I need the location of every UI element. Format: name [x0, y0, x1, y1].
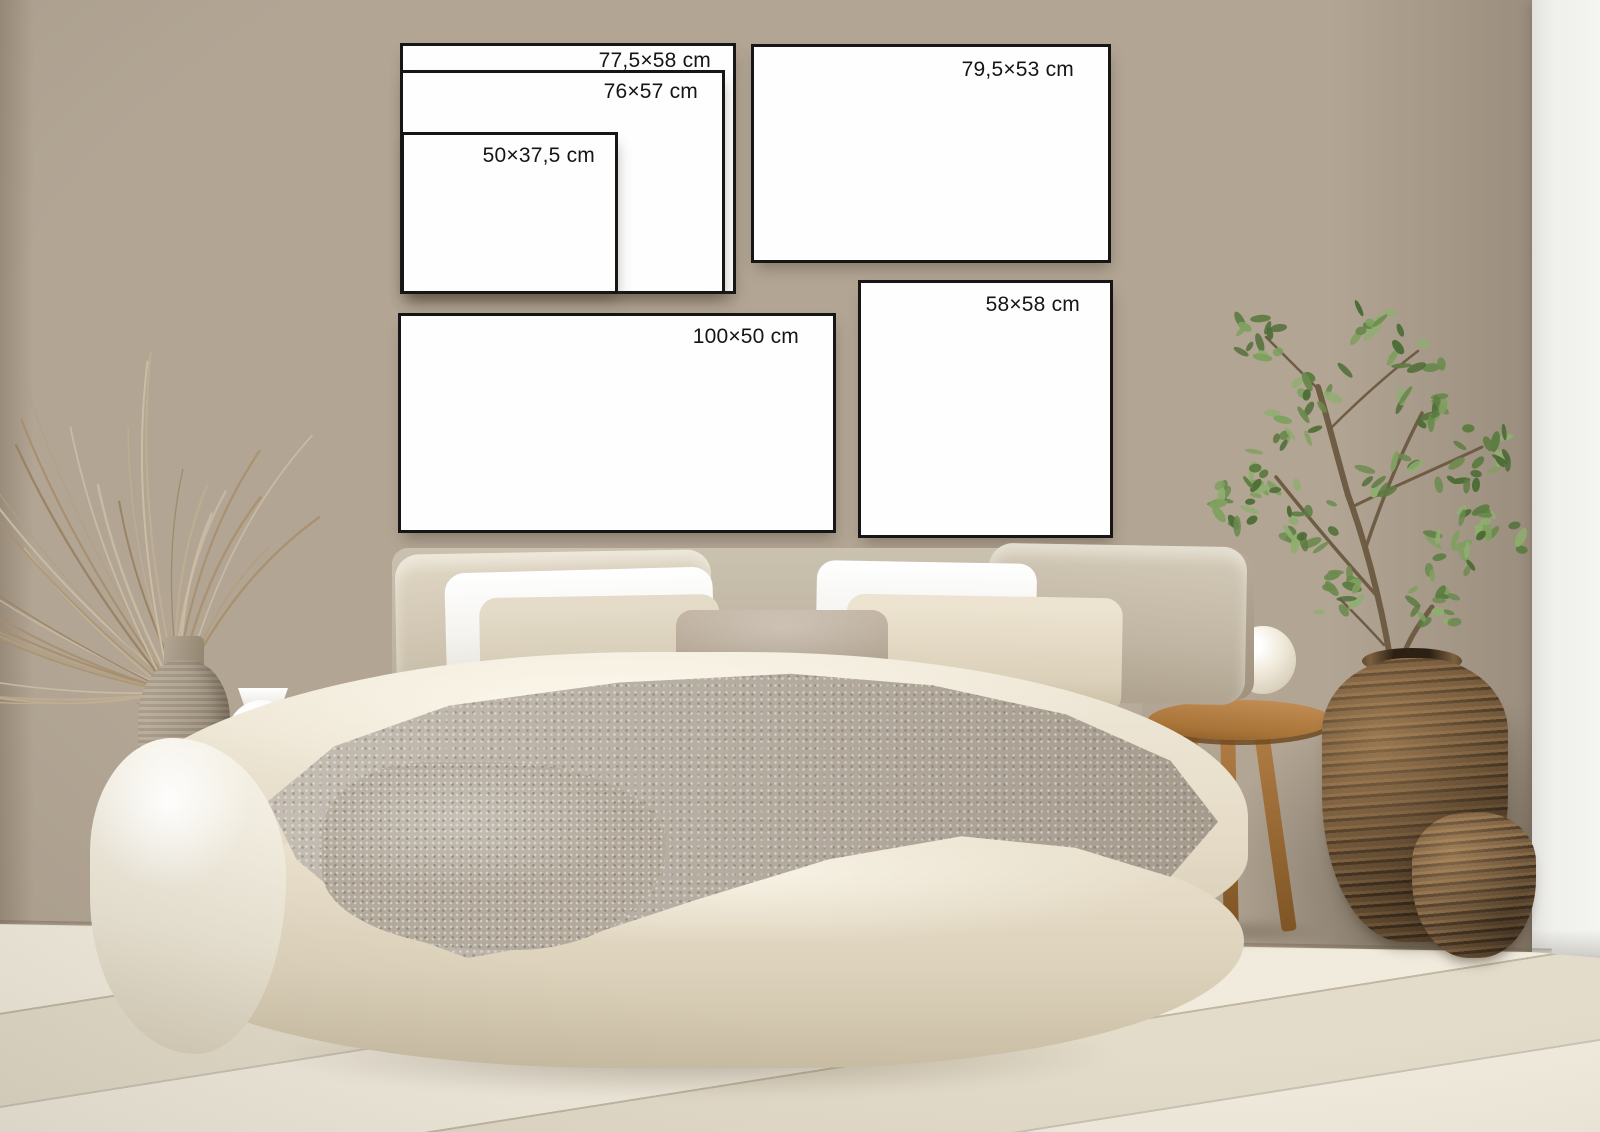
- knit-throw-drape: [322, 762, 666, 950]
- frame-size-label: 77,5×58 cm: [599, 49, 711, 72]
- duvet-left-drape: [90, 738, 286, 1054]
- frame-size-label: 76×57 cm: [604, 80, 698, 103]
- frame-size-label: 100×50 cm: [693, 325, 799, 348]
- woven-floor-pot-small: [1412, 812, 1536, 958]
- frame-size-label: 79,5×53 cm: [962, 58, 1074, 81]
- bedroom-mockup-scene: 77,5×58 cm 76×57 cm 50×37,5 cm 79,5×53 c…: [0, 0, 1600, 1132]
- frame-100x50: 100×50 cm: [398, 313, 836, 533]
- frame-size-label: 58×58 cm: [986, 293, 1080, 316]
- frame-50x37-5: 50×37,5 cm: [401, 132, 618, 294]
- frame-size-label: 50×37,5 cm: [483, 144, 595, 167]
- frame-79-5x53: 79,5×53 cm: [751, 44, 1111, 263]
- frame-58x58: 58×58 cm: [858, 280, 1113, 538]
